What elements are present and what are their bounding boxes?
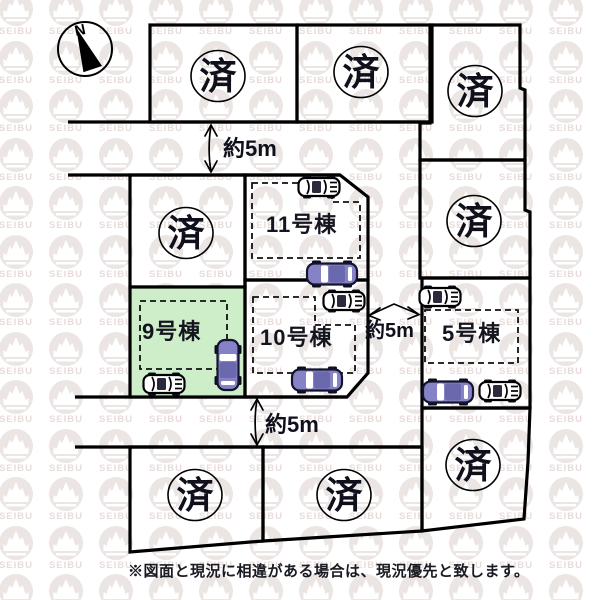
svg-text:済: 済 (456, 201, 494, 243)
car-topview-icon (324, 290, 365, 313)
svg-text:済: 済 (455, 445, 493, 487)
car-topview-icon (215, 340, 242, 390)
svg-text:済: 済 (168, 213, 206, 255)
label-building-11: 11号棟 (266, 212, 337, 237)
sold-badge: 済 (159, 208, 213, 259)
sold-badge: 済 (168, 470, 222, 521)
car-topview-icon (480, 380, 521, 403)
compass-north-icon: N (58, 21, 112, 76)
sold-badge: 済 (317, 470, 371, 521)
sold-badge: 済 (191, 51, 245, 102)
svg-text:済: 済 (200, 56, 238, 98)
road-width-arrow-north (205, 125, 217, 172)
car-topview-icon (420, 286, 461, 309)
svg-text:済: 済 (177, 475, 215, 517)
sold-badge: 済 (446, 440, 500, 491)
car-topview-icon (144, 373, 185, 396)
road-width-label-north: 約5m (223, 136, 277, 161)
svg-text:済: 済 (343, 52, 381, 94)
label-building-5: 5号棟 (442, 321, 501, 346)
svg-text:済: 済 (326, 475, 364, 517)
svg-text:済: 済 (457, 71, 495, 113)
road-width-arrow-east (369, 304, 419, 320)
sold-badge: 済 (334, 47, 388, 98)
disclaimer-note: ※図面と現況に相違がある場合は、現況優先と致します。 (128, 560, 588, 581)
label-building-10: 10号棟 (260, 325, 332, 350)
site-plan: SEIBUSEIBUSEIBUSEIBUSEIBUSEIBUSEIBUSEIBU… (0, 0, 600, 600)
svg-text:N: N (73, 21, 87, 40)
car-topview-icon (423, 379, 473, 406)
plan-drawing: 11号棟 10号棟 9号棟 5号棟 済 済 済 済 済 済 (0, 0, 600, 600)
road-width-label-east: 約5m (365, 318, 414, 342)
car-topview-icon (307, 261, 357, 288)
car-topview-icon (292, 367, 342, 394)
label-building-9: 9号棟 (142, 319, 201, 344)
road-width-arrow-south (251, 399, 263, 445)
sold-badge: 済 (447, 196, 501, 247)
car-topview-icon (299, 176, 340, 199)
sold-badge: 済 (448, 66, 502, 117)
road-width-label-south: 約5m (265, 412, 319, 437)
